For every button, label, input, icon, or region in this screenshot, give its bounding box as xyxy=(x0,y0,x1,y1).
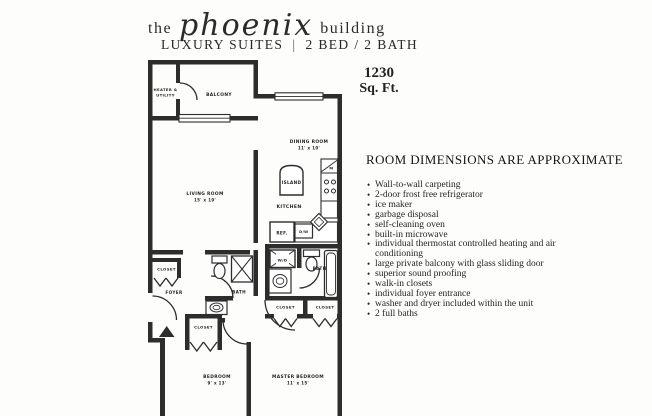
door-arc xyxy=(180,83,197,100)
sink-icon xyxy=(269,269,291,293)
building-title: thephoenixbuilding xyxy=(148,6,386,41)
room-dims-bedroom: 9' x 13' xyxy=(208,381,227,386)
label-dishwasher: D/W xyxy=(299,230,308,234)
room-dims-dining: 11' x 10' xyxy=(298,146,320,151)
room-label-closet-hall: CLOSET xyxy=(194,325,213,330)
room-label-closet-master-right: CLOSET xyxy=(316,305,335,310)
features-list: Wall-to-wall carpeting2-door frost free … xyxy=(366,181,562,320)
label-washer-dryer: W/D xyxy=(278,257,288,262)
feature-item: 2 full baths xyxy=(366,310,562,320)
entry-arrow-icon xyxy=(159,326,175,337)
square-footage-unit: Sq. Ft. xyxy=(348,81,410,96)
door-arc xyxy=(211,276,233,298)
room-label-heater-1: HEATER & xyxy=(154,87,178,92)
label-refrigerator: REF. xyxy=(276,231,287,236)
room-dims-living: 15' x 19' xyxy=(194,198,216,203)
room-label-kitchen: KITCHEN xyxy=(276,204,301,210)
room-label-closet-foyer: CLOSET xyxy=(157,267,176,272)
door-arc xyxy=(223,320,247,344)
subtitle-separator: | xyxy=(283,37,305,52)
title-pre: the xyxy=(148,20,172,37)
feature-item: individual thermostat controlled heating… xyxy=(366,240,562,260)
room-label-closet-master-left: CLOSET xyxy=(276,305,295,310)
toilet-icon xyxy=(212,256,227,279)
square-footage-value: 1230 xyxy=(348,66,410,81)
sliding-door xyxy=(179,115,230,123)
features-panel: ROOM DIMENSIONS ARE APPROXIMATE Wall-to-… xyxy=(366,152,596,320)
shower-icon xyxy=(232,256,253,282)
entry-door-arc xyxy=(153,296,177,320)
room-label-second-bath: BATH xyxy=(232,290,246,295)
window xyxy=(275,93,323,100)
room-label-master-bedroom: MASTER BEDROOM xyxy=(272,374,324,380)
floorplan-flyer: thephoenixbuilding LUXURY SUITES|2 BED /… xyxy=(0,0,652,416)
room-label-dining: DINING ROOM xyxy=(290,139,328,145)
room-label-bedroom: BEDROOM xyxy=(203,374,231,380)
room-label-foyer: FOYER xyxy=(165,290,183,295)
room-label-heater-2: UTILITY xyxy=(156,93,175,98)
subtitle-right: 2 BED / 2 BATH xyxy=(305,37,418,52)
sink-icon xyxy=(206,301,227,315)
bathtub-icon xyxy=(325,251,338,298)
floor-plan: HEATER & UTILITY BALCONY DINING ROOM 11'… xyxy=(143,56,355,416)
features-heading: ROOM DIMENSIONS ARE APPROXIMATE xyxy=(366,152,596,168)
suite-subtitle: LUXURY SUITES|2 BED / 2 BATH xyxy=(161,37,418,53)
label-microwave: M xyxy=(329,166,333,171)
room-label-living: LIVING ROOM xyxy=(186,191,223,197)
square-footage: 1230 Sq. Ft. xyxy=(348,66,410,96)
title-post: building xyxy=(320,20,385,37)
subtitle-left: LUXURY SUITES xyxy=(161,37,283,52)
label-island: ISLAND xyxy=(282,180,302,185)
room-label-master-bath: BATH xyxy=(313,266,327,271)
room-dims-master-bedroom: 11' x 15' xyxy=(287,381,309,386)
room-label-balcony: BALCONY xyxy=(206,92,232,98)
